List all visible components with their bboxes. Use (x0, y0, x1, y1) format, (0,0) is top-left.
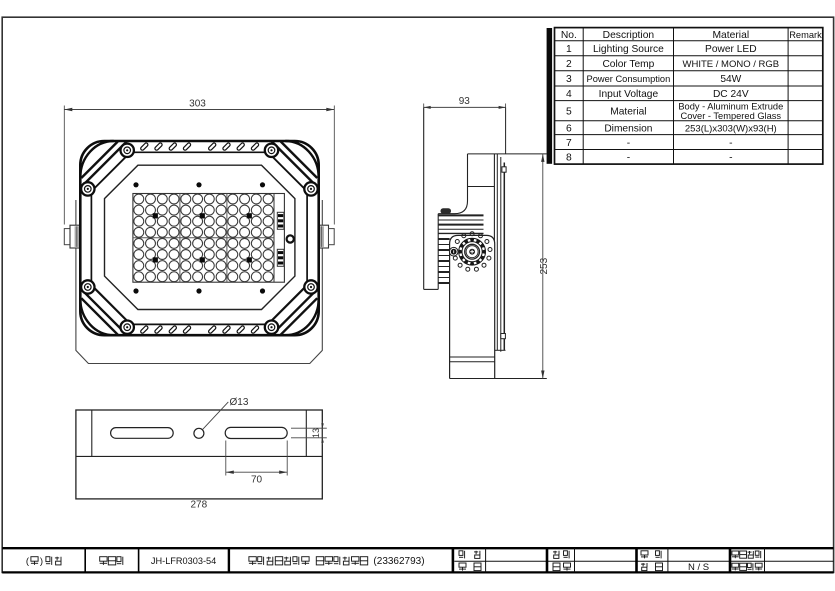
svg-text:Input Voltage: Input Voltage (599, 89, 659, 100)
svg-text:N / S: N / S (688, 562, 709, 573)
svg-text:3: 3 (566, 74, 572, 85)
svg-text:-: - (627, 153, 630, 164)
svg-text:WHITE / MONO / RGB: WHITE / MONO / RGB (683, 59, 780, 70)
svg-text:Dimension: Dimension (604, 123, 652, 134)
svg-text:1: 1 (566, 44, 572, 55)
svg-text:4: 4 (566, 89, 572, 100)
svg-text:Material: Material (610, 106, 646, 117)
svg-text:-: - (729, 153, 732, 164)
svg-text:93: 93 (459, 96, 471, 107)
svg-text:Description: Description (603, 30, 655, 41)
svg-text:8: 8 (566, 153, 572, 164)
svg-text:No.: No. (561, 30, 577, 41)
svg-text:303: 303 (189, 99, 206, 110)
svg-text:Power LED: Power LED (705, 44, 757, 55)
svg-text:253: 253 (539, 257, 550, 274)
svg-text:Remark: Remark (789, 30, 822, 40)
svg-text:13: 13 (311, 428, 321, 438)
svg-text:Ø13: Ø13 (230, 397, 249, 408)
svg-text:6: 6 (566, 123, 572, 134)
svg-text:7: 7 (566, 138, 572, 149)
svg-text:Power Consumption: Power Consumption (587, 74, 671, 84)
svg-text:Color Temp: Color Temp (602, 59, 654, 70)
svg-text:70: 70 (251, 475, 263, 486)
svg-text:JH-LFR0303-54: JH-LFR0303-54 (151, 556, 216, 566)
svg-text:54W: 54W (720, 74, 741, 85)
svg-text:2: 2 (566, 59, 572, 70)
svg-text:253(L)x303(W)x93(H): 253(L)x303(W)x93(H) (685, 123, 777, 134)
svg-text:278: 278 (190, 500, 207, 511)
svg-text:DC 24V: DC 24V (713, 89, 749, 100)
svg-text:5: 5 (566, 106, 572, 117)
svg-text:Cover - Tempered Glass: Cover - Tempered Glass (681, 111, 782, 121)
svg-text:Material: Material (712, 30, 749, 41)
svg-text:-: - (729, 138, 732, 149)
svg-text:-: - (627, 138, 630, 149)
svg-text:): ) (40, 556, 43, 567)
svg-text:(23362793): (23362793) (373, 556, 424, 567)
svg-text:Lighting Source: Lighting Source (593, 44, 664, 55)
